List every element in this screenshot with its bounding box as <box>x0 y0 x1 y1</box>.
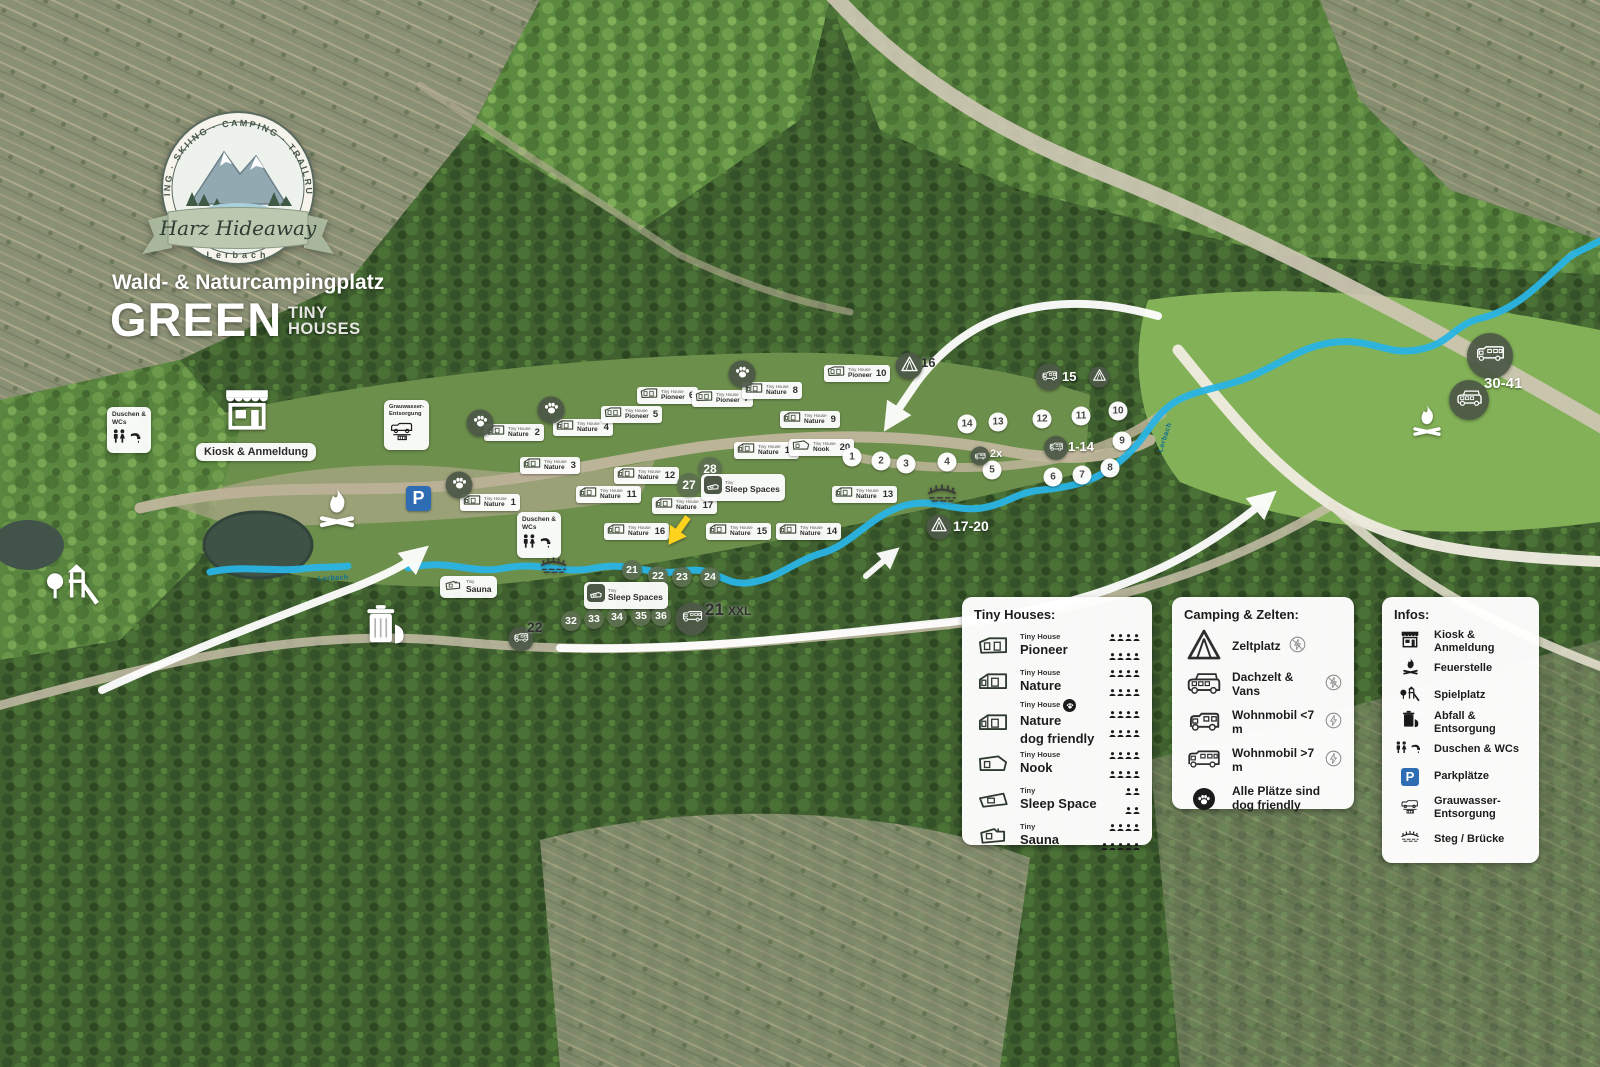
playground-icon <box>1400 684 1420 708</box>
parking-icon: P <box>1401 768 1419 786</box>
person-icon <box>1117 837 1124 855</box>
area-badge-camper-big <box>676 603 709 636</box>
kiosk-icon <box>222 386 272 437</box>
legend-item-playground: Spielplatz <box>1394 682 1527 709</box>
wc-icon <box>522 534 556 553</box>
legend-label: Zeltplatz <box>1232 640 1281 654</box>
tent-icon <box>931 517 948 538</box>
showers-wc-box: Duschen &WCs <box>107 407 151 453</box>
sleepspace-circle-27: 27 <box>677 473 701 497</box>
paw-icon <box>543 400 559 420</box>
logo-badge: HIKING · BIKING · SKIING · CAMPING · TRA… <box>128 98 348 298</box>
dog-friendly-paw-badge <box>538 397 565 424</box>
th-nature-icon <box>974 712 1012 733</box>
tinyhouse-marker-5: Tiny HousePioneer5 <box>601 406 662 423</box>
pitch-circle-1: 1 <box>843 448 862 467</box>
paw-icon <box>472 413 488 433</box>
tinyhouse-icon <box>778 523 798 541</box>
tinyhouse-marker-15: Tiny HouseNature15 <box>706 523 771 540</box>
tinyhouse-marker-13: Tiny HouseNature13 <box>832 486 897 503</box>
person-icon <box>1109 765 1116 783</box>
map-title: GREEN <box>110 296 282 343</box>
power-available-icon <box>1325 750 1342 772</box>
person-icon <box>1125 705 1132 723</box>
logo-ribbon: Harz Hideaway <box>142 208 334 255</box>
sleepspace-circle-33: 33 <box>584 609 604 629</box>
area-badge-camper <box>971 447 990 466</box>
legend-label: Dachzelt & Vans <box>1232 671 1317 699</box>
tinyhouse-marker-9: Tiny HouseNature9 <box>780 411 840 428</box>
area-badge-van <box>1449 380 1489 420</box>
campfire-icon <box>1411 403 1443 443</box>
person-icon <box>1133 683 1140 701</box>
pitch-circle-4: 4 <box>938 453 957 472</box>
legend-item-dachzelt-vans: Dachzelt & Vans <box>1184 666 1342 704</box>
person-icon <box>1117 724 1124 742</box>
legend-item-bridge: Steg / Brücke <box>1394 826 1527 853</box>
no-power-icon <box>1289 636 1306 658</box>
person-icon <box>1125 765 1132 783</box>
paw-badge-icon <box>1063 699 1076 712</box>
pitch-circle-11: 11 <box>1072 407 1091 426</box>
person-icon <box>1125 628 1132 646</box>
person-icon <box>1125 818 1132 836</box>
tinyhouse-icon <box>694 390 714 408</box>
person-icon <box>1133 724 1140 742</box>
tinyhouse-marker-8: Tiny HouseNature8 <box>742 382 802 399</box>
sleepspace-circle-36: 36 <box>651 606 671 626</box>
person-icon <box>1117 746 1124 764</box>
person-icon <box>1133 837 1140 855</box>
legend-camping-title: Camping & Zelten: <box>1184 607 1342 622</box>
tinyhouse-marker-3: Tiny HouseNature3 <box>520 457 580 474</box>
legend-item-kiosk: Kiosk & Anmeldung <box>1394 628 1527 655</box>
tinyhouse-icon <box>782 411 802 429</box>
greywater-icon <box>389 420 415 446</box>
legend-label: Abfall & Entsorgung <box>1434 710 1527 735</box>
large-camper-icon <box>1475 344 1506 368</box>
camper-icon <box>974 447 987 465</box>
pitch-circle-8: 8 <box>1101 459 1120 478</box>
campfire-icon <box>317 486 357 534</box>
sleepspace-circle-23: 23 <box>672 567 692 587</box>
dog-friendly-paw-badge <box>446 472 473 499</box>
legend-item-zeltplatz: Zeltplatz <box>1184 628 1342 666</box>
van-icon <box>1186 670 1222 701</box>
sleepspace-circle-34: 34 <box>607 607 627 627</box>
pitch-circle-9: 9 <box>1113 432 1132 451</box>
person-icon <box>1125 837 1132 855</box>
pitch-circle-12: 12 <box>1033 410 1052 429</box>
legend-item-greywater: Grauwasser- Entsorgung <box>1394 790 1527 826</box>
th-pioneer-icon <box>974 635 1012 656</box>
pitch-circle-2: 2 <box>872 452 891 471</box>
bridge-icon <box>539 556 568 580</box>
legend-label: Feuerstelle <box>1434 662 1492 675</box>
bridge-icon <box>1400 830 1420 848</box>
person-icon <box>1133 765 1140 783</box>
area-label-2x: 2x <box>990 449 1002 460</box>
area-label-16: 16 <box>921 356 935 369</box>
person-icon <box>1125 683 1132 701</box>
legend-infos: Infos: Kiosk & AnmeldungFeuerstelleSpiel… <box>1382 597 1539 863</box>
sleepspace-circle-35: 35 <box>631 606 651 626</box>
tinyhouse-icon <box>834 486 854 504</box>
paw-icon <box>734 364 750 384</box>
tinyhouse-marker-1: Tiny HouseNature1 <box>460 494 520 511</box>
sleepspace-circle-32: 32 <box>561 611 581 631</box>
person-icon <box>1133 782 1140 800</box>
legend-label: Grauwasser- Entsorgung <box>1434 795 1501 820</box>
paw-icon <box>451 475 467 495</box>
area-badge-tent <box>896 353 923 380</box>
th-nook-icon <box>974 753 1012 774</box>
person-icon <box>1133 801 1140 819</box>
legend-item-trash: Abfall & Entsorgung <box>1394 709 1527 736</box>
th-nature-icon <box>974 671 1012 692</box>
logo-location: Lerbach <box>206 250 269 260</box>
area-label-3041: 30-41 <box>1484 376 1522 391</box>
stream-name-label: Lerbach <box>318 574 349 583</box>
person-icon <box>1133 746 1140 764</box>
sauna-label: TinySauna <box>440 576 497 598</box>
tinyhouse-icon <box>603 406 623 424</box>
person-icon <box>1117 683 1124 701</box>
bridge-icon <box>926 483 958 509</box>
person-icon <box>1133 818 1140 836</box>
person-icon <box>1125 647 1132 665</box>
area-label-1720: 17-20 <box>953 519 989 533</box>
playground-icon <box>46 558 100 613</box>
tinyhouse-icon <box>826 365 846 383</box>
pitch-circle-7: 7 <box>1073 466 1092 485</box>
person-icon <box>1125 801 1132 819</box>
area-label-22: 22 <box>527 620 543 634</box>
map-subtitle: Wald- & Naturcampingplatz <box>112 271 384 295</box>
person-icon <box>1109 683 1116 701</box>
legend-item-wohnmobil-7-m: Wohnmobil <7 m <box>1184 704 1342 742</box>
person-icon <box>1117 628 1124 646</box>
trash-icon <box>365 603 405 654</box>
person-icon <box>1117 705 1124 723</box>
trash-icon <box>1402 710 1419 735</box>
person-icon <box>1109 705 1116 723</box>
legend-label: Spielplatz <box>1434 689 1485 702</box>
th-sleep-icon <box>974 789 1012 810</box>
person-icon <box>1117 664 1124 682</box>
tinyhouse-marker-10: Tiny HousePioneer10 <box>824 365 890 382</box>
person-icon <box>1109 837 1116 855</box>
legend-item-sauna: TinySauna <box>974 818 1140 854</box>
tinyhouse-icon <box>639 387 659 405</box>
greywater-box: Grauwasser-Entsorgung <box>384 400 429 450</box>
tinyhouse-icon <box>522 457 542 475</box>
legend-item-sleep-space: TinySleep Space <box>974 782 1140 818</box>
tinyhouse-marker-14: Tiny HouseNature14 <box>776 523 841 540</box>
area-badge-camper <box>1044 436 1068 460</box>
legend-label: Wohnmobil >7 m <box>1232 747 1317 775</box>
person-icon <box>1133 647 1140 665</box>
legend-item-pioneer: Tiny HousePioneer <box>974 628 1140 664</box>
person-icon <box>1125 724 1132 742</box>
area-label-15: 15 <box>1062 370 1076 383</box>
dog-friendly-paw-badge <box>467 410 494 437</box>
camper-icon <box>1186 709 1222 738</box>
person-icon <box>1133 664 1140 682</box>
person-icon <box>1109 818 1116 836</box>
person-icon <box>1109 628 1116 646</box>
person-icon <box>1109 647 1116 665</box>
person-icon <box>1125 664 1132 682</box>
legend-item-nature: Tiny HouseNature <box>974 664 1140 700</box>
sleep-icon <box>587 584 605 607</box>
wc-icon <box>112 429 146 448</box>
person-icon <box>1133 705 1140 723</box>
no-power-icon <box>1325 674 1342 696</box>
legend-label: Steg / Brücke <box>1434 833 1504 846</box>
wc-icon <box>1395 741 1425 759</box>
area-label-21: 21 <box>705 601 724 618</box>
person-icon <box>1101 837 1108 855</box>
th-sauna-icon <box>974 825 1012 846</box>
legend-tiny-houses-title: Tiny Houses: <box>974 607 1140 622</box>
legend-infos-title: Infos: <box>1394 607 1527 622</box>
sleep-icon <box>704 476 722 499</box>
legend-item-nook: Tiny HouseNook <box>974 746 1140 782</box>
person-icon <box>1109 724 1116 742</box>
person-icon <box>1125 746 1132 764</box>
area-label-XXL: XXL <box>728 605 751 617</box>
area-badge-camper <box>1036 364 1063 391</box>
legend-label: Parkplätze <box>1434 770 1489 783</box>
showers-wc-box: Duschen &WCs <box>517 512 561 558</box>
person-icon <box>1117 647 1124 665</box>
tinyhouse-icon <box>791 439 811 457</box>
sauna-icon <box>443 578 463 596</box>
camper-big-icon <box>1186 748 1222 775</box>
area-badge-tent <box>927 515 952 540</box>
legend-label: Alle Plätze sind dog friendly <box>1232 785 1320 813</box>
tinyhouse-icon <box>708 523 728 541</box>
tinyhouse-marker-16: Tiny HouseNature16 <box>604 523 669 540</box>
tinyhouse-icon <box>736 442 756 460</box>
dog-friendly-paw-badge <box>729 361 756 388</box>
person-icon <box>1117 818 1124 836</box>
tent-icon <box>900 355 918 377</box>
tinyhouse-icon <box>578 486 598 504</box>
logo-name: Harz Hideaway <box>159 216 317 240</box>
map-title-suffix: TINY HOUSES <box>288 305 361 337</box>
camper-icon <box>1040 368 1058 386</box>
sleepspace-circle-21: 21 <box>622 560 642 580</box>
tinyhouse-marker-12: Tiny HouseNature12 <box>614 467 679 484</box>
parking-badge: P <box>406 486 431 511</box>
legend-item-wohnmobil-7-m: Wohnmobil >7 m <box>1184 742 1342 780</box>
van-rooftent-icon <box>1456 388 1483 412</box>
pitch-circle-6: 6 <box>1044 468 1063 487</box>
legend-item-campfire: Feuerstelle <box>1394 655 1527 682</box>
legend-item-parking: PParkplätze <box>1394 763 1527 790</box>
tinyhouse-icon <box>616 467 636 485</box>
legend-item-alle-pl-tze-sind-dog-friendly: Alle Plätze sind dog friendly <box>1184 780 1342 818</box>
tent-icon <box>1186 628 1222 666</box>
legend-label: Kiosk & Anmeldung <box>1434 629 1527 654</box>
stream-name-label: Lerbach <box>1157 422 1173 453</box>
tent-icon <box>1092 368 1106 386</box>
person-icon <box>1117 765 1124 783</box>
power-available-icon <box>1325 712 1342 734</box>
legend-camping: Camping & Zelten: ZeltplatzDachzelt & Va… <box>1172 597 1354 809</box>
sleepspace-circle-24: 24 <box>700 567 720 587</box>
area-badge-camper-big <box>1467 333 1513 379</box>
tinyhouse-marker-6: Tiny HousePioneer6 <box>637 387 698 404</box>
legend-tiny-houses: Tiny Houses: Tiny HousePioneerTiny House… <box>962 597 1152 845</box>
pitch-circle-3: 3 <box>897 455 916 474</box>
kiosk-label: Kiosk & Anmeldung <box>196 443 316 461</box>
person-icon <box>1109 664 1116 682</box>
paw-badge-icon <box>1193 788 1215 810</box>
tinyhouse-marker-11: Tiny HouseNature11 <box>576 486 641 503</box>
area-label-114: 1-14 <box>1068 440 1094 453</box>
person-icon <box>1133 628 1140 646</box>
arrow-yellow-icon <box>662 512 694 555</box>
kiosk-icon <box>1400 630 1420 653</box>
pitch-circle-13: 13 <box>989 413 1008 432</box>
sleep-spaces-label: TinySleep Spaces <box>701 474 785 501</box>
area-badge-tent <box>1089 367 1110 388</box>
camper-icon <box>1048 439 1064 457</box>
person-icon <box>1109 746 1116 764</box>
greywater-icon <box>1400 798 1420 819</box>
sleep-spaces-label: TinySleep Spaces <box>584 582 668 609</box>
legend-item-nature: Tiny HouseNaturedog friendly <box>974 700 1140 746</box>
tinyhouse-icon <box>606 523 626 541</box>
large-camper-icon <box>681 610 703 628</box>
campground-site-map: Tiny HouseNature1Tiny HouseNature2Tiny H… <box>0 0 1600 1067</box>
legend-label: Wohnmobil <7 m <box>1232 709 1317 737</box>
person-icon <box>1125 782 1132 800</box>
legend-item-wc: Duschen & WCs <box>1394 736 1527 763</box>
legend-label: Duschen & WCs <box>1434 743 1519 756</box>
pitch-circle-10: 10 <box>1109 402 1128 421</box>
pitch-circle-14: 14 <box>958 415 977 434</box>
campfire-icon <box>1402 657 1419 680</box>
